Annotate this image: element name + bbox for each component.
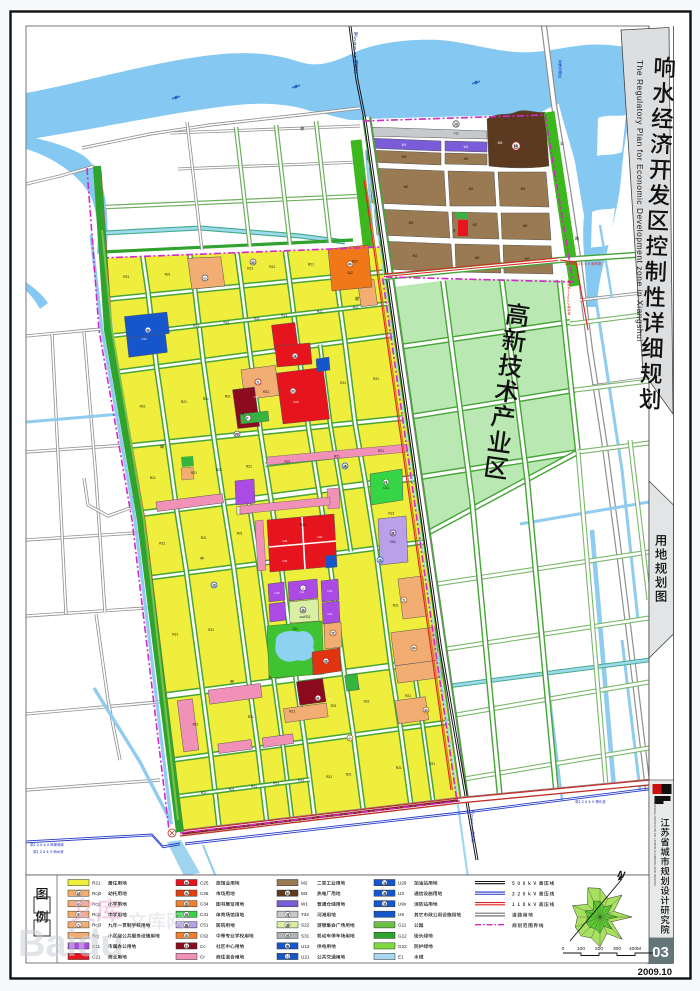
svg-text:R21: R21 [237, 531, 243, 535]
svg-text:C51: C51 [390, 540, 396, 544]
svg-text:M3: M3 [498, 141, 503, 145]
svg-text:C34: C34 [254, 395, 259, 399]
svg-text:M2: M2 [475, 256, 480, 260]
svg-text:R21: R21 [346, 773, 352, 777]
svg-text:M2: M2 [404, 185, 409, 189]
svg-text:100: 100 [577, 946, 585, 952]
svg-text:G11: G11 [398, 923, 407, 928]
svg-text:M2: M2 [521, 187, 526, 191]
svg-text:C11: C11 [328, 589, 333, 593]
svg-text:R21: R21 [165, 272, 171, 276]
svg-text:R21: R21 [246, 465, 252, 469]
svg-text:The Regulatory Plan for Econom: The Regulatory Plan for Economic Develop… [635, 60, 645, 342]
svg-text:Cc: Cc [328, 697, 332, 701]
svg-text:R21: R21 [193, 324, 199, 328]
svg-text:200: 200 [595, 946, 603, 952]
svg-text:R21: R21 [216, 468, 222, 472]
svg-text:R21: R21 [388, 512, 394, 516]
svg-text:S22: S22 [301, 923, 310, 928]
svg-text:U12: U12 [301, 944, 310, 949]
svg-text:R21: R21 [393, 604, 399, 608]
svg-text:T42: T42 [453, 132, 459, 136]
svg-text:R21: R21 [429, 762, 435, 766]
svg-text:C26: C26 [293, 400, 299, 404]
svg-text:R21: R21 [263, 390, 269, 394]
svg-text:W1: W1 [402, 143, 407, 147]
svg-text:R21: R21 [248, 715, 254, 719]
svg-text:U9x: U9x [398, 902, 407, 907]
svg-text:C62: C62 [347, 271, 353, 275]
svg-text:C11: C11 [328, 612, 333, 616]
svg-text:R21: R21 [378, 449, 384, 453]
svg-text:R21: R21 [300, 523, 306, 527]
svg-text:W1: W1 [301, 902, 308, 907]
svg-text:R21: R21 [92, 881, 101, 886]
svg-text:C41: C41 [200, 912, 209, 917]
svg-text:R21: R21 [281, 314, 287, 318]
svg-text:C21: C21 [282, 559, 288, 563]
svg-text:M2: M2 [464, 157, 469, 161]
svg-text:G12: G12 [398, 933, 407, 938]
svg-text:R21: R21 [289, 709, 295, 713]
svg-text:R21: R21 [193, 722, 199, 726]
svg-text:C51: C51 [200, 923, 209, 928]
svg-text:R21: R21 [201, 536, 207, 540]
svg-text:R21: R21 [208, 628, 214, 632]
svg-text:0: 0 [562, 946, 565, 952]
svg-text:Rcj0: Rcj0 [92, 891, 102, 896]
svg-text:C34: C34 [200, 902, 209, 907]
svg-text:M2: M2 [413, 254, 418, 258]
svg-text:R21: R21 [150, 476, 156, 480]
svg-text:R21: R21 [225, 395, 231, 399]
svg-text:C26: C26 [200, 891, 209, 896]
svg-text:M2: M2 [469, 187, 474, 191]
svg-text:C15: C15 [274, 591, 280, 595]
svg-text:C62: C62 [200, 933, 209, 938]
svg-text:R21: R21 [159, 542, 165, 546]
svg-text:C21: C21 [317, 535, 323, 539]
svg-text:03: 03 [652, 944, 669, 961]
svg-text:Baidu: Baidu [18, 923, 124, 965]
svg-text:M2: M2 [301, 881, 308, 886]
svg-text:R21: R21 [123, 275, 129, 279]
svg-text:R21: R21 [334, 454, 340, 458]
svg-text:G22: G22 [398, 944, 407, 949]
svg-text:C41: C41 [383, 486, 389, 490]
svg-text:R21: R21 [229, 787, 235, 791]
svg-text:R21: R21 [340, 381, 346, 385]
svg-text:R21: R21 [364, 699, 370, 703]
svg-text:M2: M2 [409, 221, 414, 225]
svg-text:JIANGSU INSTITUTE OF URBAN: JIANGSU INSTITUTE OF URBAN PLANNING AND … [653, 802, 657, 886]
svg-text:M2: M2 [473, 223, 478, 227]
svg-text:U12: U12 [141, 337, 147, 341]
svg-text:R21: R21 [317, 310, 323, 314]
svg-text:T42: T42 [301, 912, 309, 917]
svg-text:R21: R21 [304, 615, 310, 619]
svg-text:W1: W1 [464, 145, 469, 149]
svg-text:C25: C25 [200, 881, 209, 886]
svg-text:S31: S31 [301, 933, 310, 938]
svg-text:R21: R21 [254, 317, 260, 321]
svg-text:M3: M3 [301, 891, 308, 896]
svg-text:E1: E1 [398, 954, 404, 959]
svg-text:G11: G11 [292, 627, 298, 631]
svg-text:R21: R21 [140, 405, 146, 409]
svg-text:R21: R21 [203, 397, 209, 401]
svg-text:2009.10: 2009.10 [638, 967, 672, 978]
svg-text:R21: R21 [405, 694, 411, 698]
svg-text:U29: U29 [398, 881, 407, 886]
svg-text:R21: R21 [191, 471, 197, 475]
svg-text:R21: R21 [353, 305, 359, 309]
svg-text:R21: R21 [373, 377, 379, 381]
svg-text:400M: 400M [629, 946, 641, 952]
svg-text:R21: R21 [298, 779, 304, 783]
svg-text:R21: R21 [251, 785, 257, 789]
svg-text:U9: U9 [398, 912, 404, 917]
svg-text:R21: R21 [269, 265, 275, 269]
svg-text:R21: R21 [247, 267, 253, 271]
svg-text:R21: R21 [284, 460, 290, 464]
svg-text:R21: R21 [172, 633, 178, 637]
svg-text:R21: R21 [223, 320, 229, 324]
svg-text:U3: U3 [398, 891, 404, 896]
svg-text:U21: U21 [301, 954, 310, 959]
svg-text:R21: R21 [331, 704, 337, 708]
svg-text:C21: C21 [282, 539, 288, 543]
svg-text:R21: R21 [181, 400, 187, 404]
svg-text:Cr: Cr [200, 954, 205, 959]
svg-text:M2: M2 [523, 224, 528, 228]
svg-text:300: 300 [613, 946, 621, 952]
svg-text:R21: R21 [308, 262, 314, 266]
svg-text:R21: R21 [273, 782, 279, 786]
svg-text:R21: R21 [326, 775, 332, 779]
svg-text:R21: R21 [396, 766, 402, 770]
svg-text:M2: M2 [402, 155, 407, 159]
svg-text:R21: R21 [201, 791, 207, 795]
svg-text:Cc: Cc [200, 944, 206, 949]
